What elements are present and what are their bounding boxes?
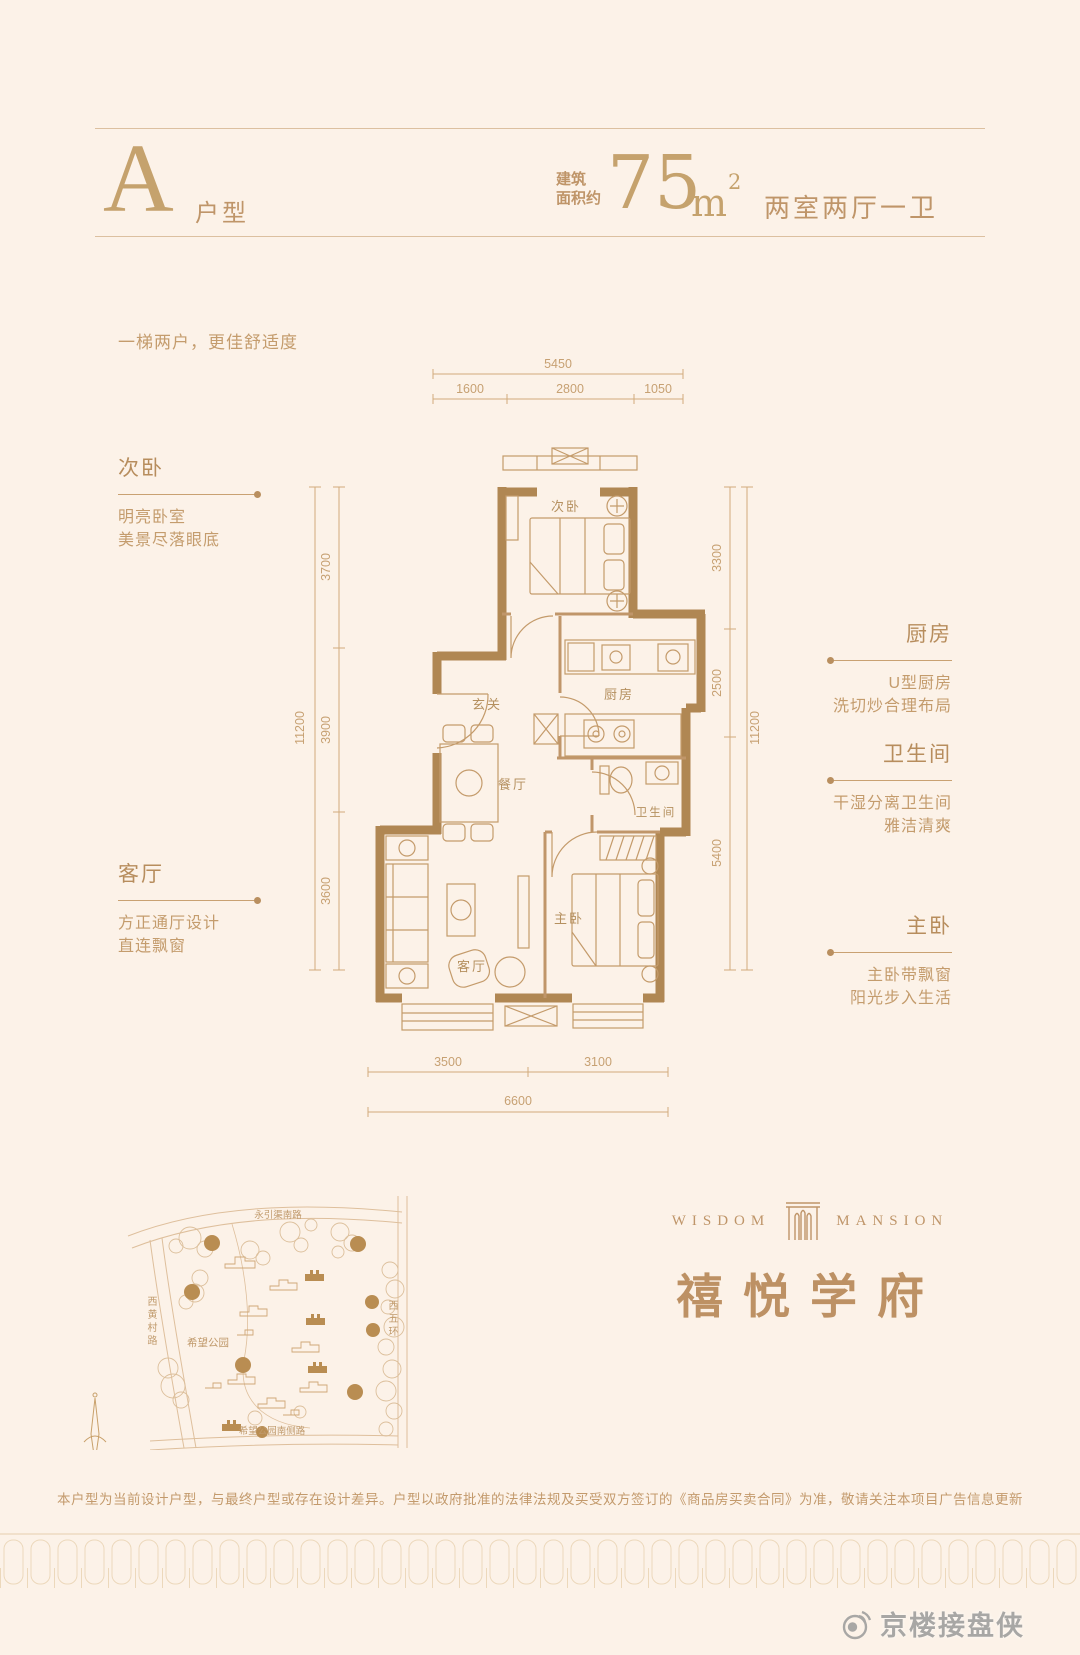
park-label: 希望公园	[187, 1336, 229, 1349]
dim-right-seg3: 5400	[710, 839, 724, 867]
area-prefix: 建筑 面积约	[556, 170, 601, 208]
chair	[471, 824, 493, 841]
map-buildings-filled	[222, 1270, 327, 1431]
master-bedroom-door	[552, 832, 597, 877]
area-value: 75	[607, 146, 701, 220]
brand-block: WISDOM MANSION 禧悦学府	[600, 1200, 1020, 1327]
room-label-master-bedroom: 主卧	[554, 911, 584, 926]
road-label-right: 西五环	[384, 1300, 399, 1339]
room-label-secondary-bedroom: 次卧	[551, 499, 581, 514]
road-label-bottom: 希望公园南侧路	[239, 1425, 306, 1437]
callout-line: U型厨房	[770, 672, 952, 695]
watermark-logo-icon	[838, 1606, 874, 1642]
secondary-bedroom-door	[511, 616, 553, 658]
leader-dot	[827, 949, 834, 956]
unit-letter: A	[103, 130, 174, 228]
leader-dot	[827, 657, 834, 664]
pouf	[495, 957, 525, 987]
compass-icon	[84, 1393, 106, 1450]
sofa	[386, 864, 428, 962]
floorplan-poster-page: A 户型 建筑 面积约 75 m 2 两室两厅一卫 一梯两户，更佳舒适度 次卧 …	[0, 0, 1080, 1655]
brand-logo: WISDOM MANSION	[600, 1200, 1020, 1242]
header-bottom-rule	[95, 236, 985, 237]
dim-top-seg2: 2800	[556, 382, 584, 396]
logo-word-left: WISDOM	[672, 1213, 771, 1230]
washbasin	[646, 762, 678, 784]
logo-word-right: MANSION	[836, 1213, 948, 1230]
bay-window-master	[573, 1004, 643, 1028]
area-prefix-line2: 面积约	[556, 189, 601, 208]
room-label-bathroom: 卫生间	[636, 805, 677, 819]
dim-top-seg1: 1600	[456, 382, 484, 396]
dim-right-seg1: 3300	[710, 544, 724, 572]
callout-leader-line	[118, 900, 258, 901]
callout-line: 洗切炒合理布局	[770, 695, 952, 718]
kitchen-sink	[602, 645, 630, 670]
callout-leader-line	[830, 780, 952, 781]
watermark-text: 京楼接盘侠	[880, 1604, 1025, 1643]
watermark: 京楼接盘侠	[838, 1604, 1025, 1643]
room-label-living-room: 客厅	[457, 959, 487, 974]
callout-master-bedroom: 主卧 主卧带飘窗 阳光步入生活	[770, 910, 952, 1010]
leader-dot	[254, 897, 261, 904]
dim-top-total: 5450	[544, 357, 572, 371]
callout-line: 干湿分离卫生间	[770, 792, 952, 815]
chair	[471, 725, 493, 742]
room-label-entry: 玄关	[472, 697, 502, 712]
callout-title: 卫生间	[770, 738, 952, 768]
header-top-rule	[95, 128, 985, 129]
leader-dot	[254, 491, 261, 498]
area-superscript: 2	[728, 172, 741, 193]
stove	[584, 720, 634, 748]
bed-secondary	[530, 518, 630, 594]
road-label-left: 西黄村路	[143, 1296, 158, 1348]
callout-title: 主卧	[770, 910, 952, 940]
dim-left-seg1: 3700	[319, 553, 333, 581]
callout-bathroom: 卫生间 干湿分离卫生间 雅洁清爽	[770, 738, 952, 838]
dining-table	[440, 744, 498, 822]
kitchen-door	[560, 697, 599, 736]
window-secondary-bedroom	[503, 456, 637, 470]
disclaimer-text: 本户型为当前设计户型，与最终户型或存在设计差异。户型以政府批准的法律法规及买受双…	[0, 1488, 1080, 1508]
dim-right-total: 11200	[748, 711, 762, 745]
callout-leader-line	[830, 660, 952, 661]
callout-line: 阳光步入生活	[770, 987, 952, 1010]
brand-name: 禧悦学府	[600, 1258, 1020, 1327]
dim-bottom-seg2: 3100	[584, 1055, 612, 1069]
dim-left-total: 11200	[293, 711, 307, 745]
dim-left-seg2: 3900	[319, 716, 333, 744]
rooms-summary: 两室两厅一卫	[764, 188, 938, 225]
leader-dot	[827, 777, 834, 784]
callout-leader-line	[118, 494, 258, 495]
callout-line: 雅洁清爽	[770, 815, 952, 838]
area-unit: m	[691, 184, 727, 222]
site-map: 永引渠南路 希望公园 希望公园南侧路	[60, 1130, 410, 1450]
room-label-dining: 餐厅	[498, 777, 528, 792]
tagline: 一梯两户，更佳舒适度	[118, 328, 298, 353]
logo-emblem-icon	[783, 1200, 823, 1242]
callout-line: 主卧带飘窗	[770, 964, 952, 987]
dim-bottom-total: 6600	[504, 1094, 532, 1108]
toilet	[600, 766, 609, 794]
dim-left-seg3: 3600	[319, 877, 333, 905]
map-roads	[128, 1196, 407, 1450]
road-label-top: 永引渠南路	[254, 1209, 302, 1221]
room-label-kitchen: 厨房	[604, 687, 634, 702]
callout-kitchen: 厨房 U型厨房 洗切炒合理布局	[770, 618, 952, 718]
unit-type-label: 户型	[195, 193, 249, 228]
windows	[402, 448, 643, 1030]
dim-top-seg3: 1050	[644, 382, 672, 396]
dim-right-seg2: 2500	[710, 669, 724, 697]
bay-window-living	[402, 1004, 493, 1030]
floor-plan: 5450 1600 2800 1050 11200 3700 3900 3600…	[285, 345, 780, 1135]
bathroom-door	[592, 772, 635, 815]
fridge	[568, 643, 594, 671]
railing-border	[0, 1532, 1080, 1594]
area-prefix-line1: 建筑	[556, 170, 601, 189]
chair	[443, 824, 465, 841]
callout-leader-line	[830, 952, 952, 953]
furniture	[386, 496, 695, 990]
chair	[443, 725, 465, 742]
tv-cabinet	[518, 876, 529, 948]
bed-master	[572, 874, 658, 966]
dim-bottom-seg1: 3500	[434, 1055, 462, 1069]
wardrobe	[506, 496, 518, 540]
callout-title: 厨房	[770, 618, 952, 648]
